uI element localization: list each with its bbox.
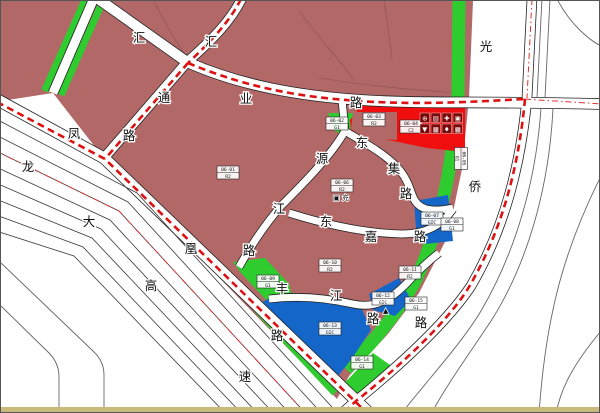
parcel-code: 06-03 [367, 114, 381, 120]
road-label-guangqiao-road: 路 [415, 315, 428, 330]
facility-icon: ▦ [433, 125, 439, 133]
parcel-type: C2 [408, 128, 414, 134]
parcel-type: GIC [428, 220, 437, 226]
planning-map: 06-01R206-02G106-03R206-04C206-05G106-06… [1, 1, 600, 413]
parcel-type: R2 [407, 274, 413, 280]
bottom-edge-strip [1, 407, 600, 412]
parcel-type: G1 [413, 305, 419, 311]
facility-icon: ⊕ [422, 114, 427, 122]
parcel-label-06-10: 06-10R2 [319, 259, 341, 273]
facility-icon: ♦ [444, 125, 450, 133]
facility-icon: ✚ [444, 114, 450, 122]
parcel-code: 06-13 [323, 323, 337, 329]
parcel-type: GIC [326, 330, 335, 336]
parcel-code: 06-02 [330, 118, 344, 124]
poi-icon: ▲ [383, 307, 389, 315]
parcel-code: 06-12 [376, 293, 390, 299]
facility-icon: ▣ [455, 114, 461, 122]
parcel-label-06-13: 06-13GIC [319, 322, 341, 336]
road-label-longda-expressway: 大 [83, 214, 96, 229]
parcel-type: R2 [339, 187, 345, 193]
parcel-type: G1 [454, 156, 460, 162]
road-label-dongjia-road: 路 [414, 229, 427, 244]
road-label-guangqiao-road: 侨 [469, 179, 482, 194]
road-label-yuanjiang-road: 江 [273, 201, 286, 216]
parcel-label-06-11: 06-11R2 [399, 266, 421, 280]
road-label-dongji-road: 东 [356, 135, 369, 150]
road-label-guangqiao-road: 光 [480, 39, 493, 54]
parcel-code: 06-14 [355, 357, 369, 363]
parcel-code: 06-09 [261, 276, 275, 282]
parcel-code: 06-15 [409, 298, 423, 304]
road-label-fengjiang-road: 丰 [276, 281, 289, 296]
parcel-type: G1 [334, 125, 340, 131]
road-label-longda-expressway: 高 [145, 278, 158, 293]
parcel-code: 06-08 [445, 219, 459, 225]
road-label-fenghuang-road: 凤 [68, 126, 81, 141]
road-label-huitong-road: 汇 [205, 34, 218, 49]
parcel-code: 06-04 [404, 121, 418, 127]
parcel-label-06-06: 06-06R2 [331, 179, 353, 193]
parcel-type: R2 [327, 267, 333, 273]
parcel-label-06-05: 06-05G1 [454, 148, 468, 170]
road-label-longda-expressway: 龙 [22, 159, 35, 174]
road-label-fengjiang-road: 江 [330, 288, 343, 303]
road-label-yuanjiang-road: 路 [243, 243, 256, 258]
parcel-code: 06-01 [221, 167, 235, 173]
poi-icon: ▣ [333, 194, 340, 202]
parcel-code: 06-05 [460, 152, 466, 166]
parcel-type: G1 [449, 226, 455, 232]
parcel-label-06-08: 06-08G1 [441, 218, 463, 232]
parcel-label-06-15: 06-15G1 [405, 297, 427, 311]
parcel-type: R2 [371, 121, 377, 127]
road-label-fenghuang-road: 路 [271, 328, 284, 343]
facility-icon: ▤ [433, 114, 439, 122]
road-label-huitong-road: 通 [158, 90, 171, 105]
parcel-label-06-07: 06-07GIC [421, 212, 443, 226]
road-label-huitong-road: 路 [123, 128, 136, 143]
parcel-label-06-04: 06-04C2 [400, 120, 422, 134]
poi-label: 充 [342, 193, 349, 202]
parcel-type: G1 [265, 283, 271, 289]
parcel-label-06-03: 06-03R2 [363, 113, 385, 127]
road-label-fenghuang-road: 凰 [185, 241, 198, 256]
road-label-fengjiang-road: 路 [367, 311, 380, 326]
parcel-label-06-12: 06-12GIC [372, 292, 394, 306]
parcel-label-06-01: 06-01R2 [217, 166, 239, 180]
road-label-longda-expressway: 速 [239, 369, 252, 384]
parcel-code: 06-07 [425, 213, 439, 219]
road-label-huiye-road: 业 [240, 91, 253, 106]
expressway-ramps [1, 263, 104, 413]
road-label-dongji-road: 路 [400, 186, 413, 201]
road-label-huiye-road: 路 [350, 95, 363, 110]
parcel-type: R2 [225, 174, 231, 180]
parcel-label-06-02: 06-02G1 [326, 117, 348, 131]
planning-map-frame: 06-01R206-02G106-03R206-04C206-05G106-06… [0, 0, 600, 413]
facility-icon: ▼ [422, 125, 427, 133]
parcel-type: G1 [359, 364, 365, 370]
parcel-type: GIC [379, 300, 388, 306]
road-label-yuanjiang-road: 源 [316, 151, 329, 166]
parcel-code: 06-11 [403, 267, 417, 273]
road-label-dongji-road: 集 [388, 161, 401, 176]
parcel-code: 06-10 [323, 260, 337, 266]
parcel-code: 06-06 [335, 180, 349, 186]
facility-icon: ▩ [455, 125, 461, 133]
road-label-dongjia-road: 东 [320, 214, 333, 229]
road-label-huiye-road: 汇 [133, 30, 146, 45]
road-label-dongjia-road: 嘉 [365, 229, 378, 244]
parcel-label-06-14: 06-14G1 [351, 356, 373, 370]
